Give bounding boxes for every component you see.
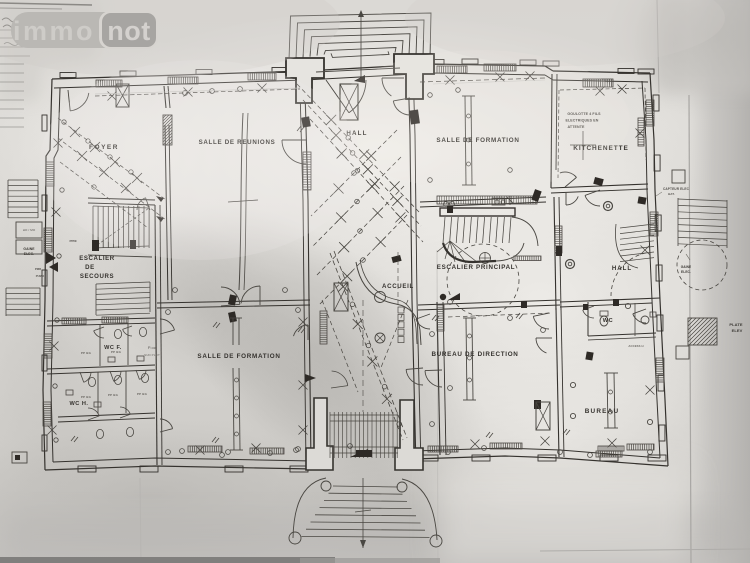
- svg-text:ELEC.: ELEC.: [24, 252, 35, 256]
- svg-text:PP BG: PP BG: [108, 393, 119, 397]
- svg-text:PMR: PMR: [35, 267, 41, 271]
- svg-text:ESCALIER PRINCIPAL: ESCALIER PRINCIPAL: [437, 264, 516, 271]
- svg-text:ESCALIER: ESCALIER: [79, 255, 115, 262]
- svg-text:HALL: HALL: [612, 265, 632, 272]
- svg-text:SALLE DE FORMATION: SALLE DE FORMATION: [197, 353, 280, 360]
- svg-text:WC H.: WC H.: [70, 401, 89, 407]
- svg-text:GAINE: GAINE: [681, 265, 692, 269]
- svg-text:DE: DE: [85, 264, 95, 271]
- svg-text:PP BG: PP BG: [81, 351, 92, 355]
- svg-text:GAINE: GAINE: [23, 247, 35, 251]
- svg-text:P.oc: P.oc: [148, 345, 156, 350]
- svg-text:PLATE: PLATE: [729, 322, 743, 327]
- svg-text:CAPTEUR ELEC: CAPTEUR ELEC: [663, 187, 690, 191]
- svg-text:WC F.: WC F.: [104, 345, 122, 351]
- svg-text:ELEV: ELEV: [732, 328, 743, 333]
- svg-text:PP BG: PP BG: [137, 392, 148, 396]
- svg-text:WC: WC: [603, 318, 614, 324]
- svg-text:HAT.: HAT.: [668, 192, 675, 196]
- svg-text:ELEC.: ELEC.: [681, 270, 691, 274]
- svg-text:PUMO: PUMO: [36, 274, 45, 278]
- svg-text:SUD PLOT: SUD PLOT: [144, 353, 160, 357]
- svg-text:ACCESS H: ACCESS H: [628, 344, 643, 348]
- svg-text:PPNI: PPNI: [69, 239, 76, 243]
- svg-text:SECOURS: SECOURS: [80, 273, 114, 280]
- svg-text:ACCUEIL: ACCUEIL: [382, 283, 414, 290]
- svg-text:BUREAU DE DIRECTION: BUREAU DE DIRECTION: [431, 351, 518, 358]
- svg-text:HO / MO: HO / MO: [23, 228, 36, 232]
- svg-text:BUREAU: BUREAU: [585, 408, 620, 415]
- svg-text:PP BG: PP BG: [81, 395, 92, 399]
